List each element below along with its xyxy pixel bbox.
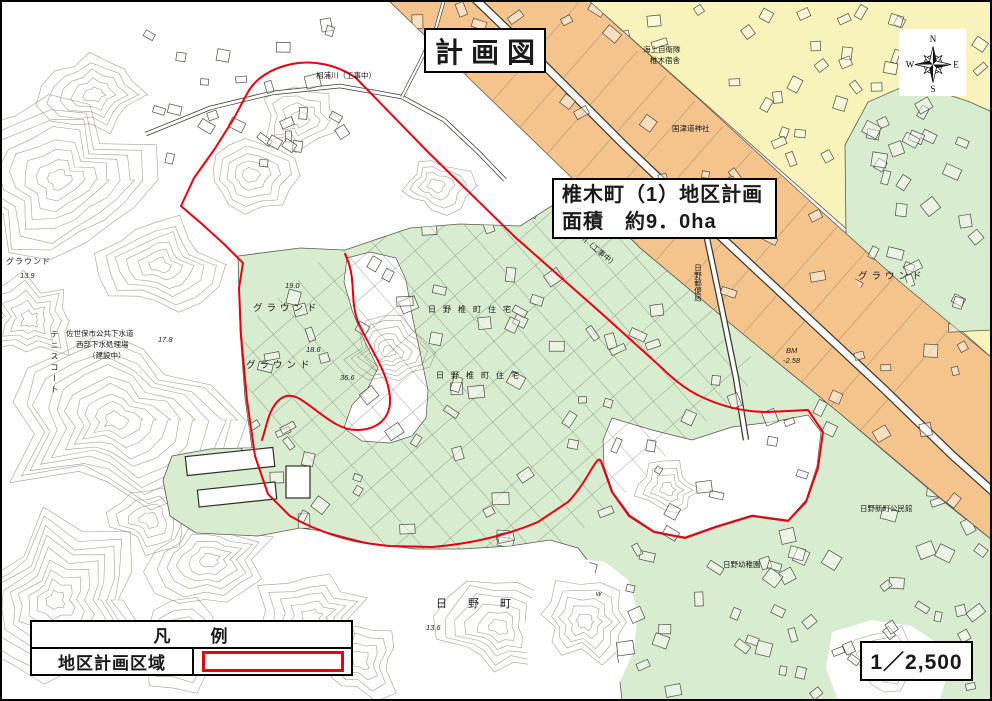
compass-w: W [905,59,914,69]
district-info-box: 椎木町（1）地区計画 面積 約9．0ha [552,178,777,239]
map-label-river-aiura: 相浦川（工事中） [316,72,376,80]
scale-text: 1／2,500 [870,646,962,676]
map-label-sewage-plant-3: （建設中） [88,352,126,360]
map-label-well-mark: w [596,590,601,598]
pocket-bottom-center [525,558,638,700]
map-canvas [0,0,992,701]
map-label-housing-1: 日野椎町住宅 [428,306,518,314]
map-label-elevation-5: 13.6 [426,624,441,632]
compass-n: N [929,34,936,44]
map-label-benchmark: BM [786,347,797,355]
map-label-elevation-2: 18.6 [306,346,321,354]
map-label-sewage-plant-1: 佐世保市公共下水道 [66,330,134,338]
map-label-kindergarten: 日野幼稚園 [723,561,761,569]
legend: 凡 例 地区計画区域 [30,620,353,676]
title-box: 計画図 [424,28,546,73]
map-label-elevation-4: 17.8 [158,336,173,344]
compass-s: S [930,84,935,94]
district-area: 面積 約9．0ha [562,209,717,235]
map-label-ground-3: グラウンド [858,272,926,282]
compass-box: N E S W [899,29,966,96]
map-label-shrine: 国津道神社 [672,125,710,133]
scale-box: 1／2,500 [860,641,973,681]
map-label-community-center: 日野新町公民館 [860,505,913,513]
district-boundary-swatch [202,651,344,672]
map-label-benchmark-value: -2.58 [783,357,800,365]
legend-header: 凡 例 [32,622,351,649]
map-label-tennis-court: テニスコート [50,330,58,396]
compass-rose-icon: N E S W [902,31,964,95]
map-label-ground-left: グラウンド [6,258,51,266]
map-label-ground-2: グラウンド [246,361,314,371]
map-label-jmsdf-1: 海上自衛隊 [643,46,681,54]
map-label-elevation-6: 13.9 [20,272,35,280]
pocket-southeast [603,415,821,537]
map-label-housing-2: 日野椎町住宅 [436,372,526,380]
district-name: 椎木町（1）地区計画 [562,182,763,208]
map-label-jmsdf-2: 椎木宿舎 [650,57,680,65]
map-label-elevation-3: 36.6 [340,374,355,382]
map-label-ground-1: グラウンド [253,304,321,314]
map-label-post-office: 日野郵便局 [694,264,702,302]
plan-map-sheet: グラウンド グラウンド グラウンド テニスコート 佐世保市公共下水道 西部下水処… [0,0,992,701]
compass-e: E [953,59,959,69]
map-label-sewage-plant-2: 西部下水処理場 [76,341,129,349]
map-label-hino-machi: 日 野 町 [436,599,516,610]
legend-row-label: 地区計画区域 [32,649,194,674]
map-label-elevation-1: 19.0 [285,282,300,290]
title-text: 計画図 [435,31,543,71]
legend-row: 地区計画区域 [32,649,351,674]
legend-swatch-cell [194,649,351,674]
